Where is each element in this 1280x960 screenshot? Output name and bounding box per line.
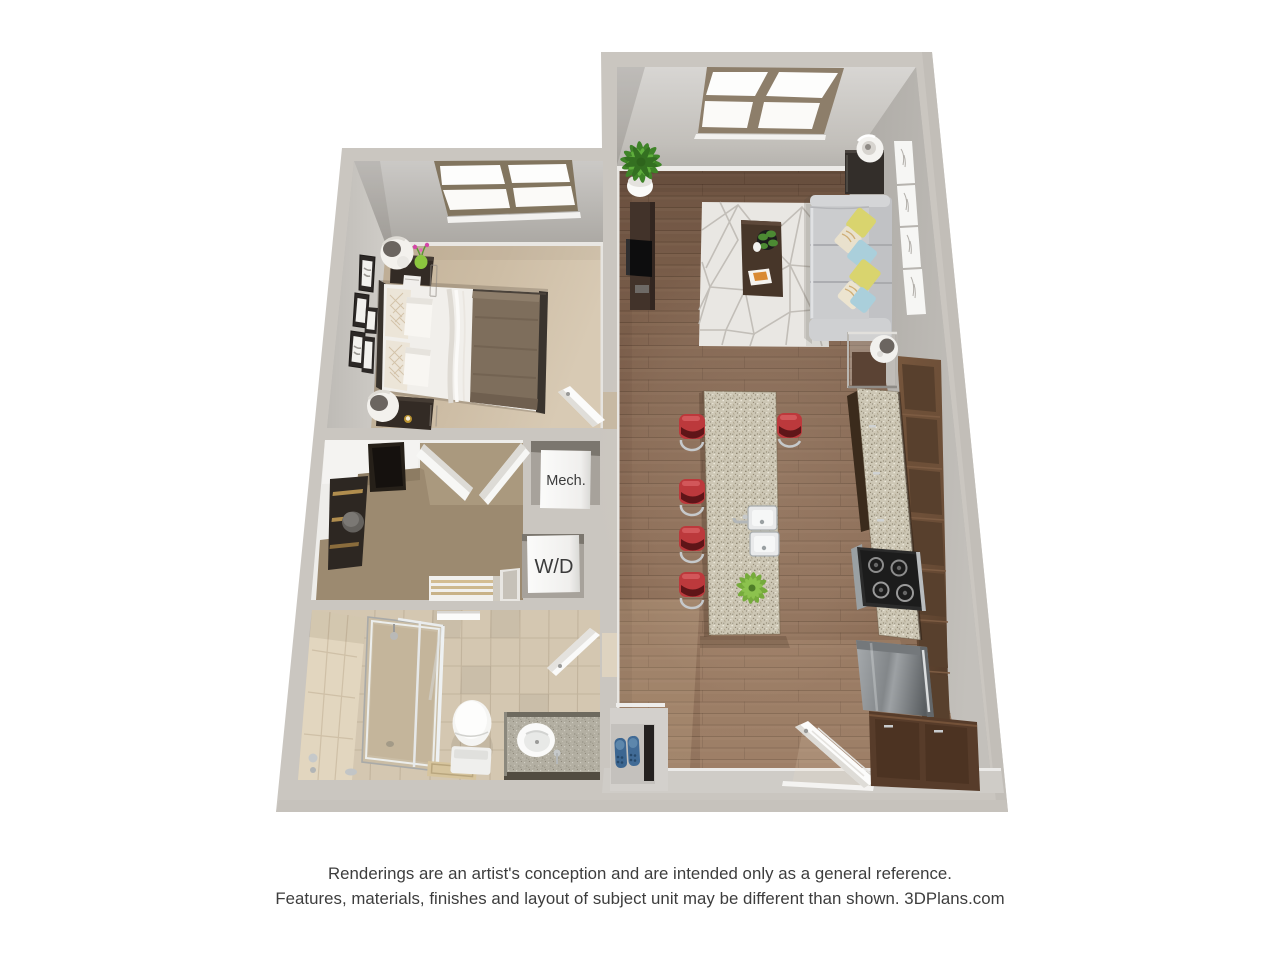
svg-text:W/D: W/D xyxy=(535,556,574,578)
svg-text:Mech.: Mech. xyxy=(546,473,586,489)
